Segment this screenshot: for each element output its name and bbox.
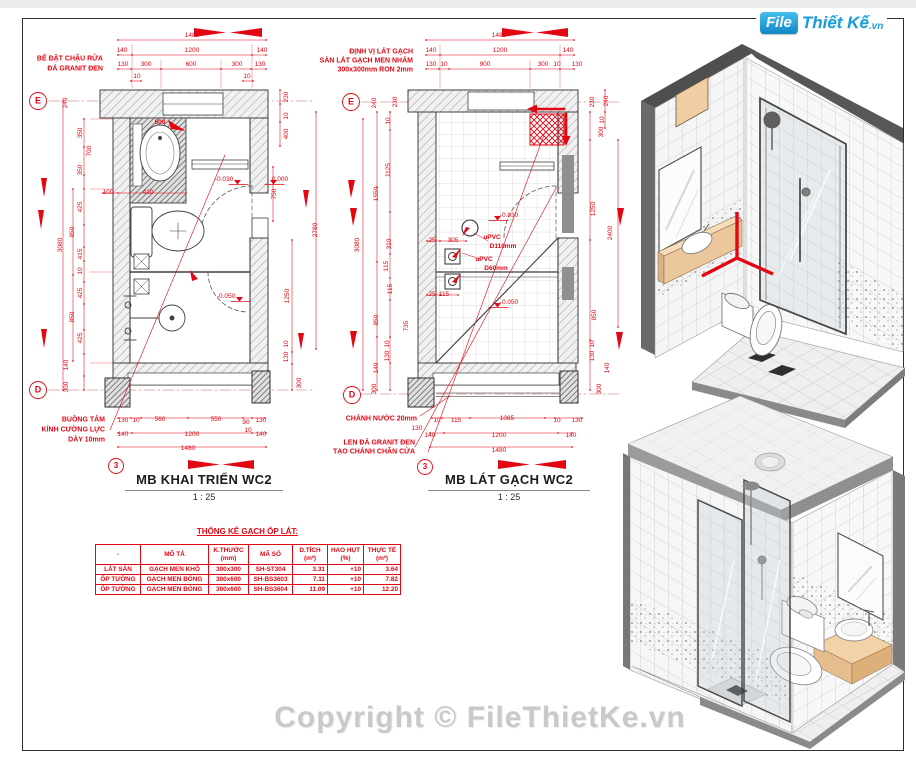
cad-drawing <box>0 0 916 767</box>
granite-jamb <box>562 267 574 300</box>
grid-bubble-D <box>344 387 361 404</box>
table-cell: ỐP TƯỜNG <box>96 575 141 585</box>
floor-tile-grid <box>436 112 558 363</box>
table-cell: GẠCH MEN BÓNG <box>141 575 209 585</box>
table-cell: +10 <box>328 565 364 575</box>
grid-bubble-E <box>343 94 360 111</box>
table-cell: GẠCH MEN KHÔ <box>141 565 209 575</box>
iso-view-top <box>641 44 905 428</box>
shower-glass <box>698 480 790 722</box>
plan-right-scale: 1 : 25 <box>428 492 590 502</box>
table-cell: ỐP TƯỜNG <box>96 585 141 595</box>
table-cell: +10 <box>328 585 364 595</box>
table-row: ỐP TƯỜNGGẠCH MEN BÓNG300x600SH-BS36037.1… <box>96 575 401 585</box>
iso-view-bottom <box>623 396 905 749</box>
table-cell: +10 <box>328 575 364 585</box>
table-cell: 12.20 <box>364 585 401 595</box>
plan-left-title: MB KHAI TRIỂN WC2 <box>125 472 283 491</box>
floor-plan-left-geometry <box>30 28 317 474</box>
detail-bubble <box>109 459 124 474</box>
table-header: - <box>96 545 141 565</box>
table-cell: SH-ST304 <box>249 565 293 575</box>
table-row: LÁT SÀNGẠCH MEN KHÔ300x300SH-ST3043.31+1… <box>96 565 401 575</box>
corner-column <box>252 371 270 403</box>
floor-drain-icon <box>134 254 149 294</box>
tile-spec-table: -MÔ TẢK.THƯỚC(mm)MÃ SỐD.TÍCH(m²)HAO HỤT(… <box>95 544 401 595</box>
granite-jamb <box>562 155 574 233</box>
table-cell: 300x300 <box>209 565 249 575</box>
logo-tld: .vn <box>869 21 883 32</box>
corner-column <box>408 378 434 407</box>
table-cell: GẠCH MEN BÓNG <box>141 585 209 595</box>
table-cell: 3.31 <box>293 565 328 575</box>
site-logo[interactable]: File Thiết Kế .vn <box>756 11 887 35</box>
wall-niche <box>468 92 534 110</box>
door-swing <box>200 186 252 238</box>
copyright-watermark: Copyright © FileThietKe.vn <box>140 701 820 735</box>
grid-bubble-D <box>30 382 47 399</box>
table-cell: 7.82 <box>364 575 401 585</box>
table-header: MÃ SỐ <box>249 545 293 565</box>
tile-start-square <box>530 114 564 145</box>
table-cell: 7.11 <box>293 575 328 585</box>
table-cell: 300x600 <box>209 575 249 585</box>
table-cell: SH-BS3604 <box>249 585 293 595</box>
table-header: HAO HỤT(%) <box>328 545 364 565</box>
sink-symbol <box>130 118 186 203</box>
table-header: D.TÍCH(m²) <box>293 545 328 565</box>
logo-file-badge: File <box>760 12 798 34</box>
table-header: K.THƯỚC(mm) <box>209 545 249 565</box>
table-cell: 11.09 <box>293 585 328 595</box>
table-header: THỰC TẾ(m²) <box>364 545 401 565</box>
floor-plan-right-geometry <box>342 28 624 475</box>
logo-name: Thiết Kế <box>802 13 869 33</box>
table-cell: SH-BS3603 <box>249 575 293 585</box>
table-row: ỐP TƯỜNGGẠCH MEN BÓNG300x600SH-BS360411.… <box>96 585 401 595</box>
corner-column <box>105 378 130 407</box>
table-cell: LÁT SÀN <box>96 565 141 575</box>
table-cell: 3.64 <box>364 565 401 575</box>
grid-bubble-E <box>30 93 47 110</box>
table-cell: 300x600 <box>209 585 249 595</box>
plan-left-scale: 1 : 25 <box>125 492 283 502</box>
shower-symbol <box>124 296 185 340</box>
drawing-sheet: 148014012001401303006003001301010BỂ ĐẶT … <box>0 0 916 767</box>
tile-spec-heading: THỐNG KÊ GẠCH ỐP LÁT: <box>95 527 400 536</box>
corner-column <box>560 371 578 403</box>
table-header: MÔ TẢ <box>141 545 209 565</box>
plan-right-title: MB LÁT GẠCH WC2 <box>428 472 590 491</box>
